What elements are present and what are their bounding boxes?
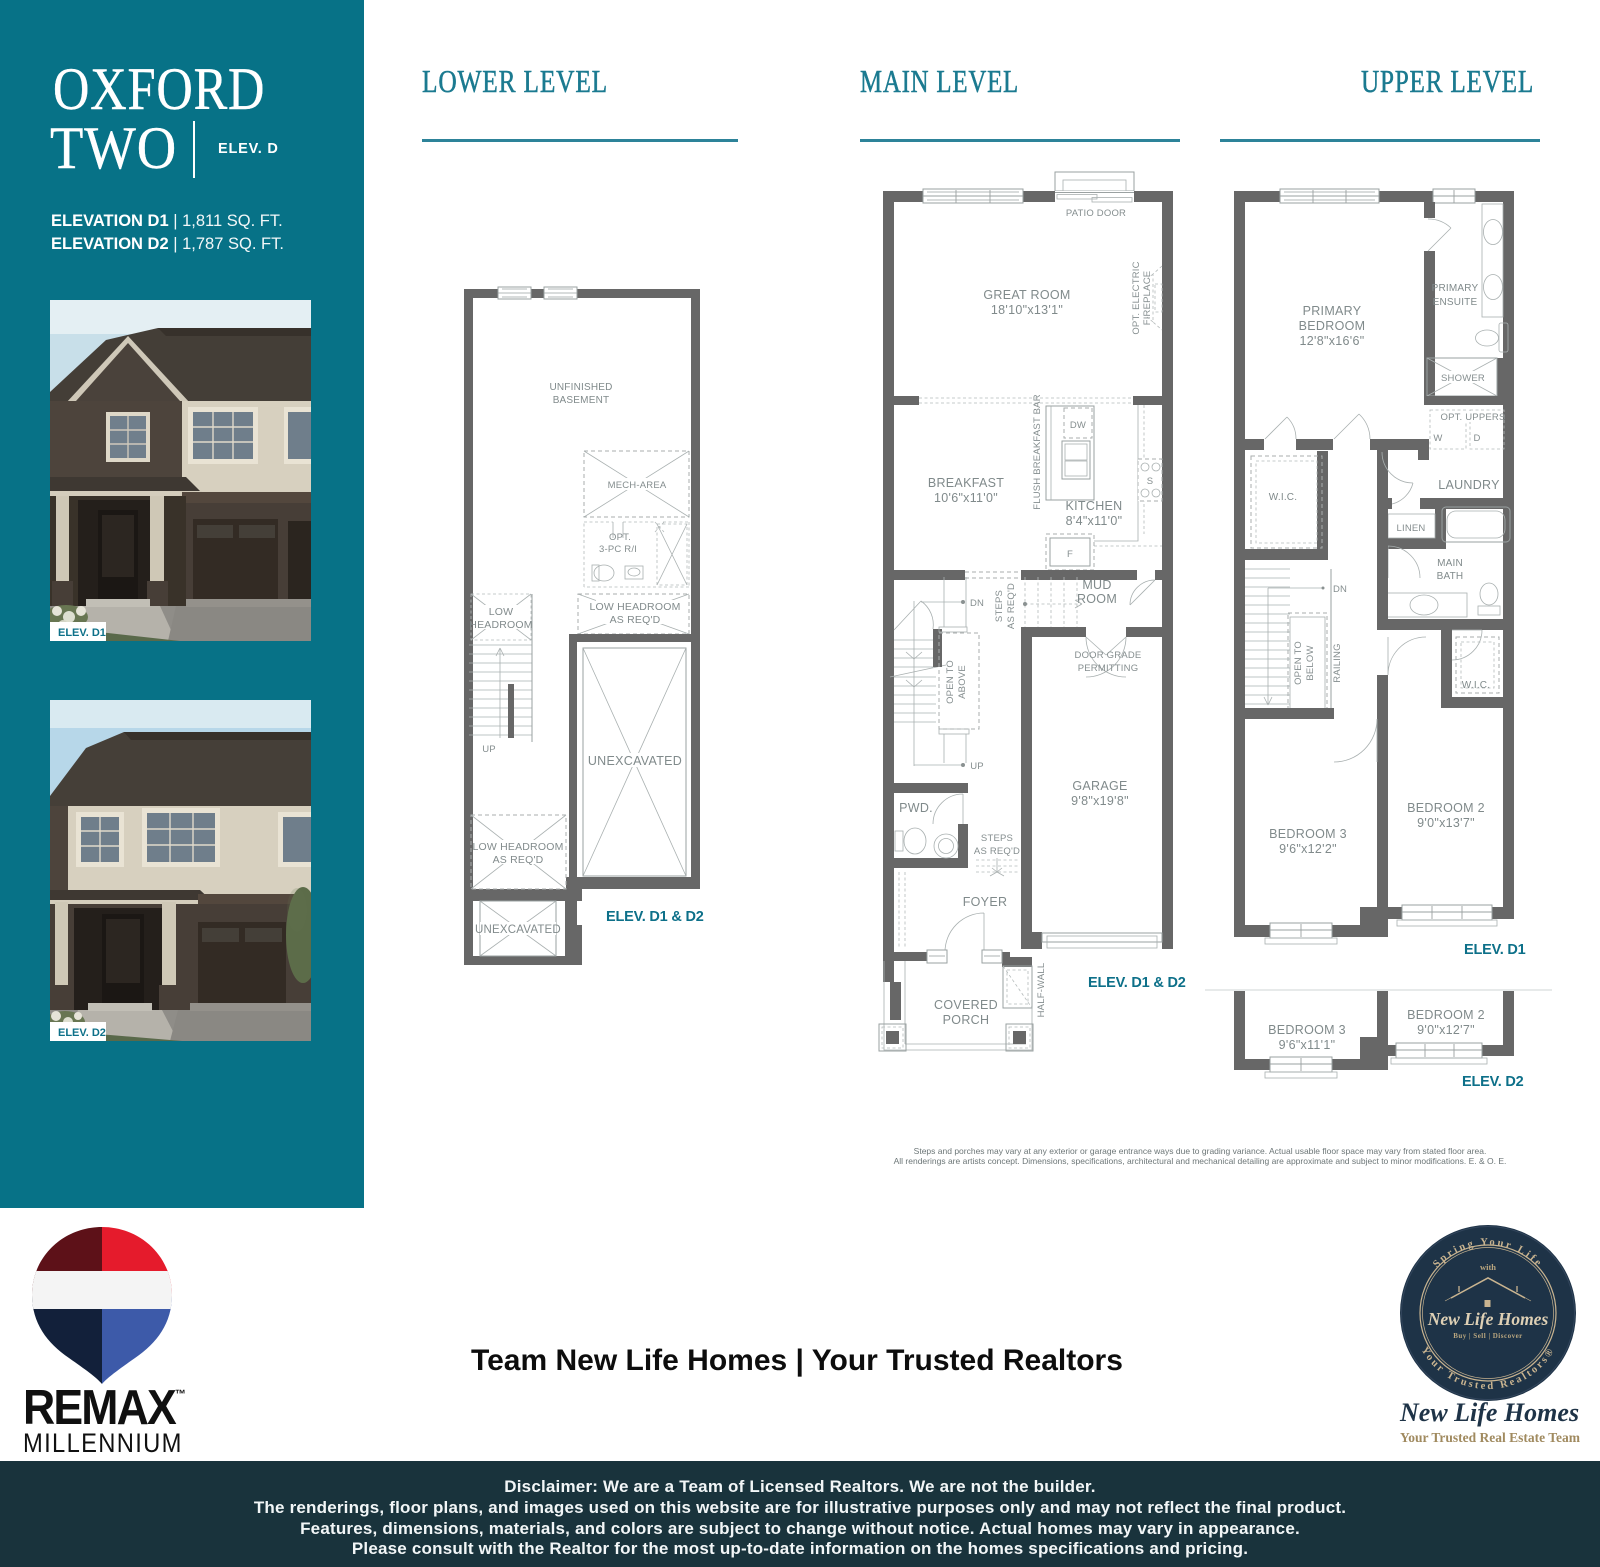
svg-text:UNFINISHED: UNFINISHED bbox=[549, 382, 612, 393]
svg-text:LINEN: LINEN bbox=[1397, 523, 1426, 534]
svg-text:MECH-AREA: MECH-AREA bbox=[608, 480, 667, 491]
svg-text:D: D bbox=[1473, 433, 1480, 444]
svg-text:3-PC R/I: 3-PC R/I bbox=[599, 544, 637, 555]
svg-text:UP: UP bbox=[970, 761, 984, 772]
svg-text:PERMITTING: PERMITTING bbox=[1078, 663, 1139, 674]
svg-text:W.I.C.: W.I.C. bbox=[1462, 680, 1490, 691]
svg-text:BREAKFAST: BREAKFAST bbox=[928, 476, 1004, 490]
svg-text:9'0"x13'7": 9'0"x13'7" bbox=[1417, 816, 1475, 830]
svg-text:ABOVE: ABOVE bbox=[957, 665, 968, 699]
svg-text:18'10"x13'1": 18'10"x13'1" bbox=[991, 303, 1063, 317]
svg-text:AS REQ'D: AS REQ'D bbox=[1006, 583, 1017, 629]
svg-text:FOYER: FOYER bbox=[963, 895, 1008, 909]
svg-text:LOW HEADROOM: LOW HEADROOM bbox=[472, 841, 563, 853]
svg-text:PRIMARY: PRIMARY bbox=[1303, 304, 1362, 318]
svg-text:HEADROOM: HEADROOM bbox=[469, 619, 532, 631]
svg-text:UNEXCAVATED: UNEXCAVATED bbox=[588, 754, 682, 768]
svg-text:BEDROOM 3: BEDROOM 3 bbox=[1269, 827, 1347, 841]
svg-text:COVERED: COVERED bbox=[934, 998, 998, 1012]
svg-text:W: W bbox=[1433, 433, 1442, 444]
svg-text:9'6"x12'2": 9'6"x12'2" bbox=[1279, 842, 1337, 856]
svg-text:MAIN: MAIN bbox=[1437, 558, 1463, 569]
svg-text:LOW HEADROOM: LOW HEADROOM bbox=[589, 601, 680, 613]
svg-text:OPT.: OPT. bbox=[609, 532, 631, 543]
svg-text:BASEMENT: BASEMENT bbox=[553, 395, 610, 406]
svg-text:AS REQ'D: AS REQ'D bbox=[974, 846, 1020, 857]
svg-text:FLUSH BREAKFAST BAR: FLUSH BREAKFAST BAR bbox=[1032, 394, 1043, 510]
svg-text:AS REQ'D: AS REQ'D bbox=[610, 614, 661, 626]
svg-text:with: with bbox=[1480, 1262, 1496, 1272]
svg-text:BATH: BATH bbox=[1437, 571, 1464, 582]
svg-text:W.I.C.: W.I.C. bbox=[1269, 492, 1297, 503]
svg-text:HALF-WALL: HALF-WALL bbox=[1036, 963, 1047, 1018]
svg-text:UNEXCAVATED: UNEXCAVATED bbox=[475, 924, 561, 936]
svg-text:PRIMARY: PRIMARY bbox=[1432, 283, 1479, 294]
svg-text:OPT. UPPERS: OPT. UPPERS bbox=[1440, 412, 1505, 423]
svg-text:GREAT ROOM: GREAT ROOM bbox=[983, 288, 1070, 302]
svg-text:STEPS: STEPS bbox=[994, 590, 1005, 622]
svg-text:PATIO DOOR: PATIO DOOR bbox=[1066, 208, 1126, 219]
svg-text:BEDROOM 2: BEDROOM 2 bbox=[1407, 1008, 1485, 1022]
svg-text:MUD: MUD bbox=[1082, 578, 1111, 592]
svg-text:OPEN TO: OPEN TO bbox=[1293, 641, 1304, 685]
svg-text:DN: DN bbox=[970, 598, 984, 609]
svg-text:BEDROOM 3: BEDROOM 3 bbox=[1268, 1023, 1346, 1037]
svg-text:F: F bbox=[1067, 549, 1073, 560]
svg-text:PWD.: PWD. bbox=[899, 801, 933, 815]
svg-text:10'6"x11'0": 10'6"x11'0" bbox=[934, 491, 998, 505]
svg-text:9'8"x19'8": 9'8"x19'8" bbox=[1071, 794, 1129, 808]
svg-text:DW: DW bbox=[1070, 420, 1086, 431]
svg-text:DN: DN bbox=[1333, 584, 1347, 595]
svg-text:AS REQ'D: AS REQ'D bbox=[493, 854, 544, 866]
svg-text:S: S bbox=[1147, 476, 1154, 487]
svg-text:BEDROOM 2: BEDROOM 2 bbox=[1407, 801, 1485, 815]
svg-text:9'0"x12'7": 9'0"x12'7" bbox=[1417, 1023, 1475, 1037]
svg-text:DOOR GRADE: DOOR GRADE bbox=[1075, 650, 1142, 661]
svg-text:ROOM: ROOM bbox=[1077, 592, 1117, 606]
svg-text:Buy | Sell | Discover: Buy | Sell | Discover bbox=[1453, 1332, 1523, 1340]
svg-text:UP: UP bbox=[482, 744, 496, 755]
svg-text:STEPS: STEPS bbox=[981, 833, 1013, 844]
svg-text:RAILING: RAILING bbox=[1332, 643, 1343, 682]
svg-text:OPT. ELECTRIC: OPT. ELECTRIC bbox=[1131, 261, 1142, 334]
svg-text:PORCH: PORCH bbox=[943, 1013, 990, 1027]
svg-text:ENSUITE: ENSUITE bbox=[1433, 297, 1478, 308]
svg-text:FIREPLACE: FIREPLACE bbox=[1142, 271, 1153, 326]
svg-text:New Life Homes: New Life Homes bbox=[1427, 1309, 1549, 1329]
svg-text:BEDROOM: BEDROOM bbox=[1299, 319, 1366, 333]
svg-text:GARAGE: GARAGE bbox=[1072, 779, 1127, 793]
svg-text:LOW: LOW bbox=[489, 606, 514, 618]
svg-text:8'4"x11'0": 8'4"x11'0" bbox=[1066, 514, 1123, 528]
svg-text:12'8"x16'6": 12'8"x16'6" bbox=[1300, 334, 1365, 348]
svg-text:9'6"x11'1": 9'6"x11'1" bbox=[1279, 1038, 1336, 1052]
svg-text:SHOWER: SHOWER bbox=[1441, 373, 1485, 384]
svg-text:OPEN TO: OPEN TO bbox=[945, 660, 956, 704]
svg-text:LAUNDRY: LAUNDRY bbox=[1438, 478, 1500, 492]
svg-text:KITCHEN: KITCHEN bbox=[1066, 499, 1123, 513]
svg-text:BELOW: BELOW bbox=[1305, 645, 1316, 680]
